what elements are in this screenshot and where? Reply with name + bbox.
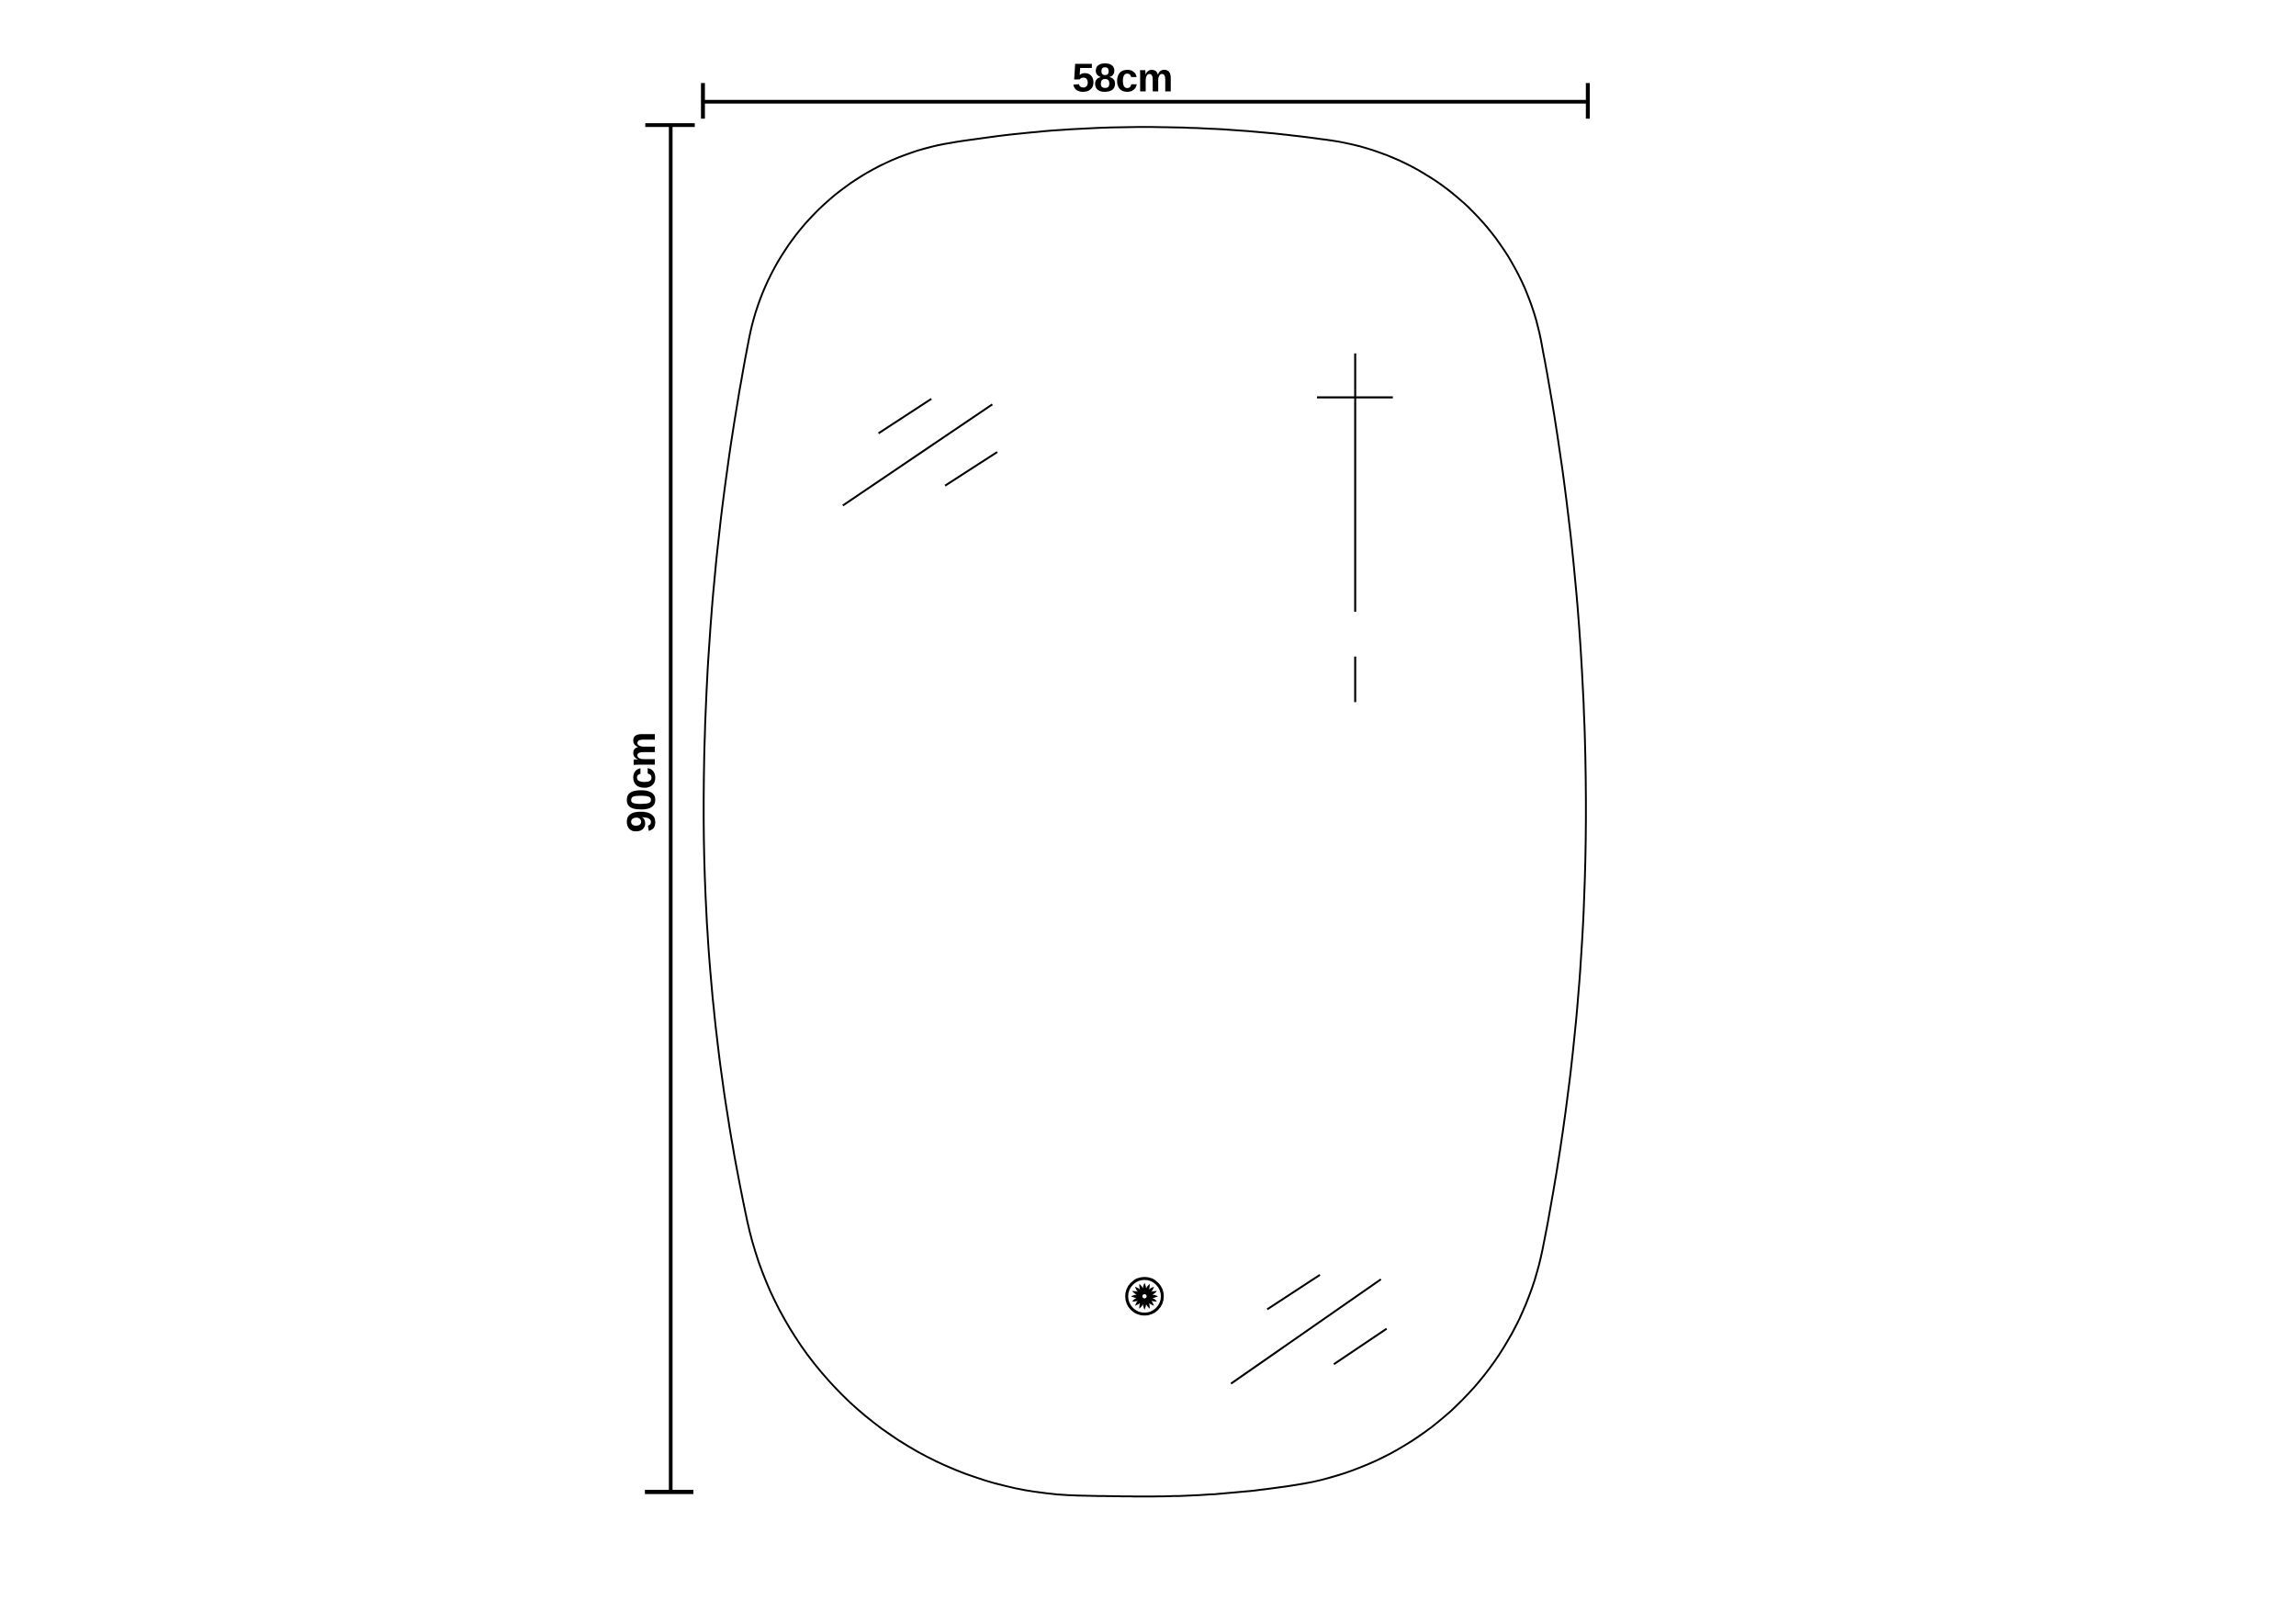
svg-text:90cm: 90cm bbox=[619, 732, 664, 832]
svg-text:58cm: 58cm bbox=[1072, 56, 1172, 101]
